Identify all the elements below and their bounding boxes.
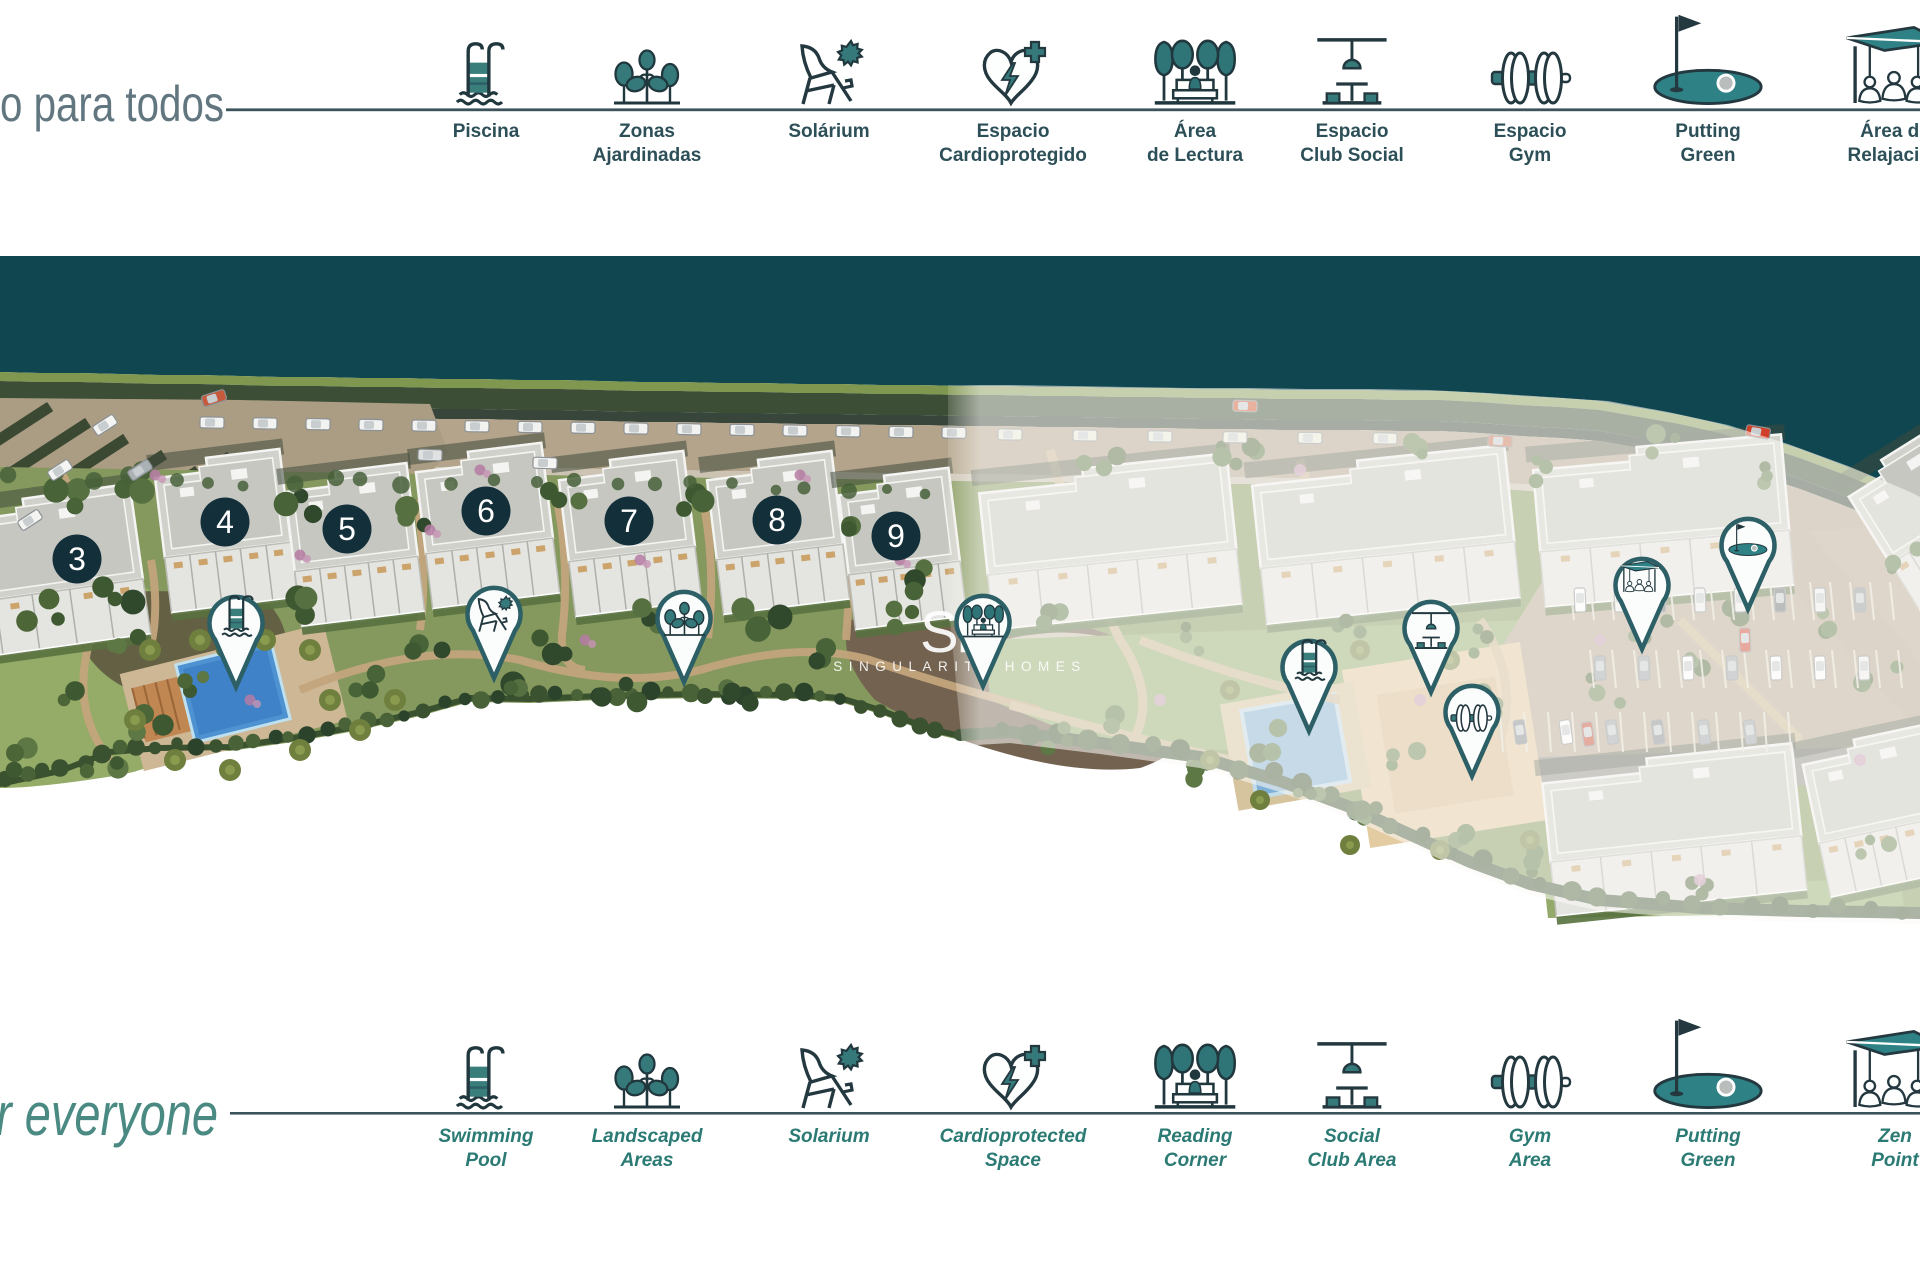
- svg-text:Cardioprotected: Cardioprotected: [940, 1126, 1087, 1147]
- svg-text:S: S: [920, 600, 959, 665]
- svg-text:Zen: Zen: [1877, 1126, 1912, 1147]
- svg-text:r everyone: r everyone: [0, 1081, 218, 1148]
- svg-text:Areas: Areas: [620, 1150, 674, 1171]
- svg-text:Ajardinadas: Ajardinadas: [593, 145, 702, 166]
- svg-text:o para todos: o para todos: [0, 76, 224, 132]
- svg-text:Space: Space: [985, 1150, 1041, 1171]
- svg-text:Club Social: Club Social: [1300, 145, 1403, 166]
- svg-text:8: 8: [768, 502, 786, 538]
- svg-text:Área de: Área de: [1860, 120, 1920, 142]
- svg-text:Zonas: Zonas: [619, 121, 675, 142]
- svg-text:Espacio: Espacio: [977, 121, 1050, 142]
- svg-text:Putting: Putting: [1675, 121, 1740, 142]
- svg-text:Pool: Pool: [465, 1150, 507, 1171]
- svg-text:Área: Área: [1174, 120, 1217, 142]
- svg-text:Green: Green: [1681, 1150, 1736, 1171]
- svg-text:Area: Area: [1508, 1150, 1552, 1171]
- svg-text:Gym: Gym: [1509, 145, 1551, 166]
- svg-text:Social: Social: [1324, 1126, 1381, 1147]
- svg-text:Point: Point: [1871, 1150, 1919, 1171]
- svg-text:Solárium: Solárium: [788, 121, 869, 142]
- svg-text:3: 3: [68, 541, 86, 577]
- svg-text:Reading: Reading: [1158, 1126, 1233, 1147]
- svg-text:Espacio: Espacio: [1494, 121, 1567, 142]
- svg-text:Gym: Gym: [1509, 1126, 1551, 1147]
- svg-text:de Lectura: de Lectura: [1147, 145, 1244, 166]
- svg-text:SINGULARITY HOMES: SINGULARITY HOMES: [833, 659, 1087, 674]
- svg-text:9: 9: [887, 518, 905, 554]
- svg-text:7: 7: [620, 503, 638, 539]
- svg-text:Corner: Corner: [1164, 1150, 1228, 1171]
- svg-text:Espacio: Espacio: [1316, 121, 1389, 142]
- svg-text:Landscaped: Landscaped: [592, 1126, 703, 1147]
- svg-text:Club Area: Club Area: [1307, 1150, 1396, 1171]
- svg-text:Relajación: Relajación: [1847, 145, 1920, 166]
- svg-text:4: 4: [216, 504, 234, 540]
- svg-text:Putting: Putting: [1675, 1126, 1741, 1147]
- svg-text:Cardioprotegido: Cardioprotegido: [939, 145, 1087, 166]
- svg-text:Green: Green: [1681, 145, 1736, 166]
- svg-text:5: 5: [338, 511, 356, 547]
- svg-text:6: 6: [477, 493, 495, 529]
- svg-text:Solarium: Solarium: [788, 1126, 869, 1147]
- svg-text:Swimming: Swimming: [438, 1126, 533, 1147]
- svg-text:Piscina: Piscina: [453, 121, 520, 142]
